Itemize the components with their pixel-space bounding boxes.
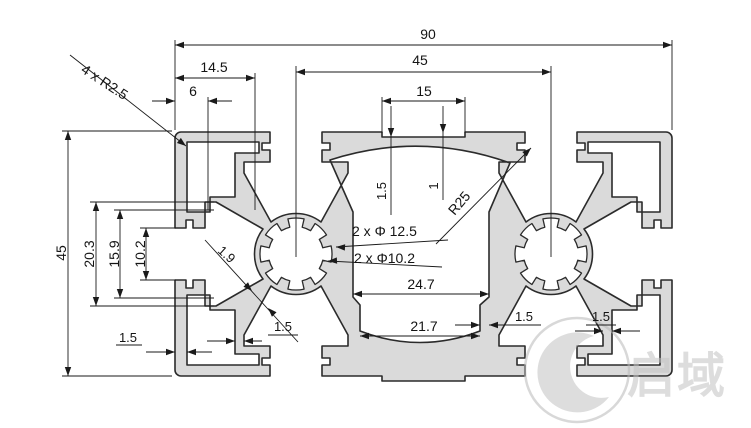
dimension-arrowhead xyxy=(175,75,184,81)
dimension-arrowhead xyxy=(175,42,184,48)
note-bore-small: 2 x Φ10.2 xyxy=(354,250,415,266)
dimension-arrowhead xyxy=(143,271,149,280)
watermark-text: 启域 xyxy=(627,348,727,404)
dimension-arrowhead xyxy=(143,228,149,237)
dim-side-slot-opening: 10.2 xyxy=(132,240,148,267)
profile-geometry xyxy=(175,132,672,381)
technical-drawing-canvas: 启域 90 45 15 14.5 6 4 x R2.5 45 20.3 15.9… xyxy=(0,0,751,428)
dimension-arrowhead xyxy=(208,98,217,104)
dimension-lines xyxy=(62,40,672,376)
dimension-arrowhead xyxy=(117,289,123,298)
note-bore-large: 2 x Φ 12.5 xyxy=(352,223,417,239)
dim-corner-flange-width: 14.5 xyxy=(200,59,227,75)
dimension-arrowhead xyxy=(388,128,394,137)
dim-wall-bottom-center: 1.5 xyxy=(515,309,533,324)
dimension-arrowhead xyxy=(166,349,175,355)
dim-cavity-arc-radius: R25 xyxy=(445,188,474,218)
dimension-arrowhead xyxy=(456,98,465,104)
dim-top-groove-depth: 1 xyxy=(426,182,441,189)
dimension-arrowhead xyxy=(65,367,71,376)
profile-cross-section xyxy=(175,132,672,381)
dim-wall-bottom-right: 1.5 xyxy=(592,309,610,324)
dimension-arrowhead xyxy=(93,297,99,306)
dimension-arrowhead xyxy=(471,322,480,328)
drawing-svg: 启域 90 45 15 14.5 6 4 x R2.5 45 20.3 15.9… xyxy=(0,0,751,428)
dim-side-slot-outer: 20.3 xyxy=(81,240,97,267)
dim-total-height: 45 xyxy=(53,245,69,261)
dim-corner-radius-note: 4 x R2.5 xyxy=(79,61,132,103)
dimension-arrowhead xyxy=(166,98,175,104)
dim-wall-bottom-left: 1.5 xyxy=(274,319,292,334)
dimension-arrowhead xyxy=(266,306,277,317)
dimension-arrowhead xyxy=(246,75,255,81)
dimension-arrowhead xyxy=(542,69,551,75)
dimension-arrowhead xyxy=(65,131,71,140)
dimension-arrowhead xyxy=(480,291,489,297)
dim-top-wall-thickness: 1.5 xyxy=(374,182,389,200)
dim-center-section-width: 45 xyxy=(412,52,428,68)
dimension-arrowhead xyxy=(440,124,446,133)
dim-side-slot-inner: 15.9 xyxy=(106,240,122,267)
dimension-arrowhead xyxy=(187,349,196,355)
dim-wall-left: 1.5 xyxy=(119,330,137,345)
dimension-arrowhead xyxy=(382,98,391,104)
dim-cavity-neck-width: 21.7 xyxy=(410,318,437,334)
dim-web-thickness: 1.9 xyxy=(215,243,238,266)
dim-total-width: 90 xyxy=(420,26,436,42)
dimension-arrowhead xyxy=(244,338,253,344)
dim-top-slot-spacing: 15 xyxy=(416,83,432,99)
dimension-arrowhead xyxy=(117,210,123,219)
dimension-arrowhead xyxy=(93,202,99,211)
dimension-arrowhead xyxy=(353,291,362,297)
dim-edge-to-slot: 6 xyxy=(189,83,197,99)
dimension-arrowhead xyxy=(226,338,235,344)
dimension-arrowhead xyxy=(663,42,672,48)
dim-cavity-width: 24.7 xyxy=(407,276,434,292)
dimension-arrowhead xyxy=(296,69,305,75)
